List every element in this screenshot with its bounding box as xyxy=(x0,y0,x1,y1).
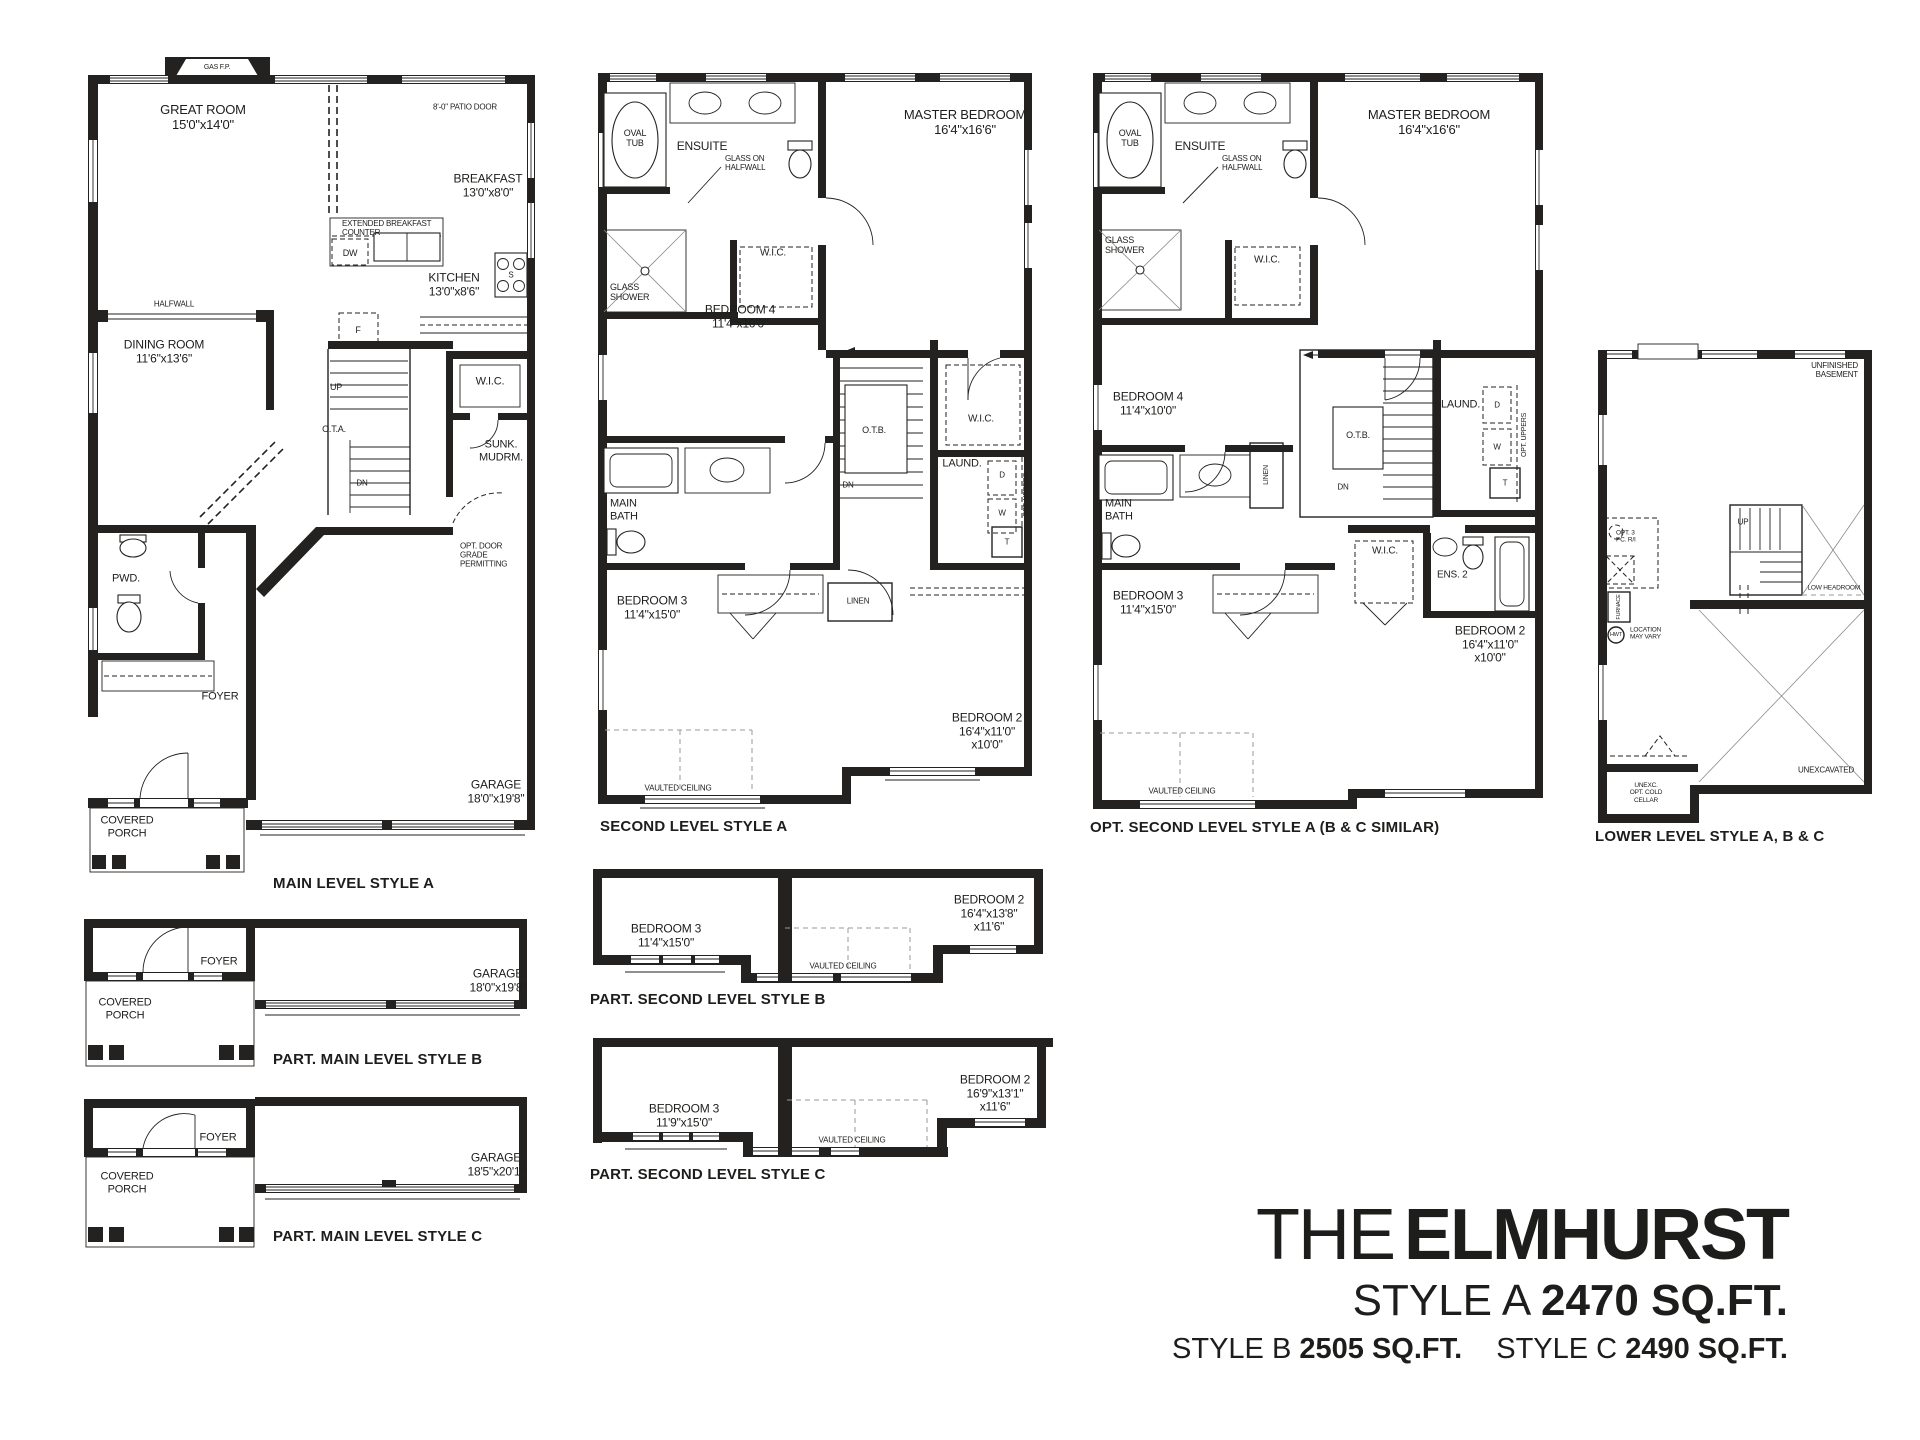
main-a-breakfast-label: BREAKFAST 13'0"x8'0" xyxy=(454,172,523,199)
main-bath-tub-icon xyxy=(604,448,678,493)
second-a-bedroom3-label: BEDROOM 3 11'4"x15'0" xyxy=(617,594,687,621)
lower-up-label: UP xyxy=(1738,517,1749,526)
lower-low-headroom-label: LOW HEADROOM xyxy=(1808,584,1861,591)
main-a-patio-door-label: 8'-0" PATIO DOOR xyxy=(433,102,497,111)
main-a-porch-label: COVERED PORCH xyxy=(101,814,154,839)
main-a-gas-fp-label: GAS F.P. xyxy=(204,64,230,72)
psb-caption: PART. SECOND LEVEL STYLE B xyxy=(590,991,826,1008)
plan-second-level-a: OVAL TUB ENSUITE GLASS ON HALFWALL GLASS… xyxy=(590,55,1040,845)
pmc-foyer-label: FOYER xyxy=(200,1132,237,1145)
opt2-tub-t-label: T xyxy=(1503,478,1508,487)
second-a-oval-tub-label: OVAL TUB xyxy=(624,128,647,149)
model-name-prefix: THE xyxy=(1256,1195,1394,1275)
powder-sink-icon xyxy=(120,535,146,557)
floor-plan-sheet: GAS F.P. GREAT ROOM 15'0"x14'0" 8'-0" PA… xyxy=(0,0,1920,1440)
main-a-opt-door-label: OPT. DOOR GRADE PERMITTING xyxy=(460,541,507,568)
second-a-master-label: MASTER BEDROOM 16'4"x16'6" xyxy=(904,108,1026,138)
main-a-ota-label: O.T.A. xyxy=(322,424,346,434)
opt2-laundry-label: LAUND. xyxy=(1441,399,1480,412)
kitchen-sink-icon xyxy=(374,233,440,261)
lower-hwt-label: HWT xyxy=(1610,632,1622,638)
second-a-main-bath-label: MAIN BATH xyxy=(610,497,638,522)
main-a-dn-label: DN xyxy=(356,478,367,487)
plan-part-second-b: BEDROOM 3 11'4"x15'0" VAULTED CEILING BE… xyxy=(585,860,1065,1025)
main-bath-vanity-icon xyxy=(685,448,770,493)
main-a-dining-label: DINING ROOM 11'6"x13'6" xyxy=(124,338,204,365)
main-a-foyer-label: FOYER xyxy=(202,691,239,704)
second-a-glass-shower-label: GLASS SHOWER xyxy=(610,282,649,303)
lower-caption: LOWER LEVEL STYLE A, B & C xyxy=(1595,828,1824,845)
ens2-toilet-icon xyxy=(1463,537,1483,569)
opt2-oval-tub-label: OVAL TUB xyxy=(1119,128,1142,149)
opt-second-level-a-drawing xyxy=(1085,55,1555,845)
opt2-ens2-label: ENS. 2 xyxy=(1437,569,1467,580)
pmb-porch-label: COVERED PORCH xyxy=(99,996,152,1021)
opt2-bedroom2-label: BEDROOM 2 16'4"x11'0" x10'0" xyxy=(1455,624,1525,665)
style-a-sqft: STYLE A 2470 SQ.FT. xyxy=(1172,1278,1788,1324)
main-bath-tub-icon xyxy=(1099,455,1173,500)
lower-cold-cellar-label: UNEXC. OPT. COLD CELLAR xyxy=(1630,782,1663,804)
opt2-vaulted-label: VAULTED CEILING xyxy=(1149,786,1216,795)
porch-outline xyxy=(86,981,254,1066)
main-bath-toilet-icon xyxy=(607,529,645,555)
opt2-wic-b2-label: W.I.C. xyxy=(1372,545,1398,556)
psb-vaulted-label: VAULTED CEILING xyxy=(810,961,877,970)
ens2-tub-icon xyxy=(1495,537,1529,611)
main-a-wic-label: W.I.C. xyxy=(476,376,505,389)
main-a-stove-label: S xyxy=(508,270,513,279)
opt2-washer-label: W xyxy=(1493,442,1500,451)
ensuite-vanity-icon xyxy=(670,83,795,123)
psc-bedroom2-label: BEDROOM 2 16'9"x13'1" x11'6" xyxy=(960,1073,1030,1114)
stairs-icon xyxy=(840,347,923,498)
lower-location-label: LOCATION MAY VARY xyxy=(1630,627,1661,642)
lower-opt-3pc-label: OPT. 3 PC. R/I xyxy=(1616,530,1636,545)
plan-lower-level: UNFINISHED BASEMENT UP LOW HEADROOM OPT.… xyxy=(1590,330,1880,860)
main-a-garage-label: GARAGE 18'0"x19'8" xyxy=(468,778,525,805)
second-a-bedroom4-label: BEDROOM 4 11'4"x10'0" xyxy=(705,303,775,330)
pmc-garage-label: GARAGE 18'5"x20'1" xyxy=(468,1151,525,1178)
main-bath-toilet-icon xyxy=(1102,533,1140,559)
style-b-label: STYLE B xyxy=(1172,1333,1291,1365)
second-a-linen-label: LINEN xyxy=(847,596,870,605)
second-a-opt-uppers-label: OPT. UPPERS xyxy=(1023,473,1031,517)
lower-unexcavated-label: UNEXCAVATED xyxy=(1798,765,1854,774)
pmb-garage-label: GARAGE 18'0"x19'8" xyxy=(470,967,527,994)
opt2-wic-ensuite-label: W.I.C. xyxy=(1254,254,1280,265)
title-block: THEELMHURST STYLE A 2470 SQ.FT. STYLE B … xyxy=(1172,1198,1788,1364)
pmc-porch-label: COVERED PORCH xyxy=(101,1170,154,1195)
style-b-area: 2505 SQ.FT. xyxy=(1299,1333,1462,1365)
second-a-glass-halfwall-label: GLASS ON HALFWALL xyxy=(725,154,765,172)
main-a-pwd-label: PWD. xyxy=(112,573,140,586)
model-name-main: ELMHURST xyxy=(1404,1195,1788,1275)
psc-caption: PART. SECOND LEVEL STYLE C xyxy=(590,1166,826,1183)
main-a-kitchen-label: KITCHEN 13'0"x8'6" xyxy=(428,271,479,298)
main-a-ext-counter-label: EXTENDED BREAKFAST COUNTER xyxy=(342,219,431,237)
second-a-ensuite-label: ENSUITE xyxy=(677,140,728,154)
opt2-dn-label: DN xyxy=(1337,482,1348,491)
main-a-mudroom-label: SUNK. MUDRM. xyxy=(479,438,523,463)
pmc-caption: PART. MAIN LEVEL STYLE C xyxy=(273,1228,482,1245)
psc-vaulted-label: VAULTED CEILING xyxy=(819,1135,886,1144)
main-a-great-room-label: GREAT ROOM 15'0"x14'0" xyxy=(160,103,246,133)
pmb-caption: PART. MAIN LEVEL STYLE B xyxy=(273,1051,482,1068)
opt-bath-rough-in-icon xyxy=(1604,518,1658,588)
lower-level-drawing xyxy=(1590,330,1880,860)
opt2-ensuite-label: ENSUITE xyxy=(1175,140,1226,154)
main-bath-vanity-icon xyxy=(1180,455,1250,497)
ensuite-toilet-icon xyxy=(1283,141,1307,178)
second-a-washer-label: W xyxy=(998,508,1005,517)
opt2-glass-halfwall-label: GLASS ON HALFWALL xyxy=(1222,154,1262,172)
second-a-tub-t-label: T xyxy=(1005,537,1010,546)
style-a-label: STYLE A xyxy=(1353,1276,1529,1325)
second-a-caption: SECOND LEVEL STYLE A xyxy=(600,818,787,835)
opt2-master-label: MASTER BEDROOM 16'4"x16'6" xyxy=(1368,108,1490,138)
psc-bedroom3-label: BEDROOM 3 11'9"x15'0" xyxy=(649,1102,719,1129)
plan-part-main-b: FOYER COVERED PORCH GARAGE 18'0"x19'8" P… xyxy=(70,905,545,1080)
lower-unfinished-label: UNFINISHED BASEMENT xyxy=(1811,361,1858,379)
style-bc-sqft: STYLE B 2505 SQ.FT. STYLE C 2490 SQ.FT. xyxy=(1172,1334,1788,1364)
opt2-caption: OPT. SECOND LEVEL STYLE A (B & C SIMILAR… xyxy=(1090,819,1439,836)
opt2-otb-label: O.T.B. xyxy=(1346,430,1370,440)
second-a-laundry-label: LAUND. xyxy=(942,458,981,471)
plan-main-level-a: GAS F.P. GREAT ROOM 15'0"x14'0" 8'-0" PA… xyxy=(70,55,540,900)
plan-part-main-c: FOYER COVERED PORCH GARAGE 18'5"x20'1" P… xyxy=(70,1085,545,1265)
opt2-opt-uppers-label: OPT. UPPERS xyxy=(1521,413,1529,457)
style-c-label: STYLE C xyxy=(1496,1333,1617,1365)
second-a-bedroom2-label: BEDROOM 2 16'4"x11'0" x10'0" xyxy=(952,711,1022,752)
main-a-up-label: UP xyxy=(330,382,342,392)
opt2-dryer-label: D xyxy=(1494,400,1500,409)
style-c-area: 2490 SQ.FT. xyxy=(1625,1333,1788,1365)
second-a-wic-master-label: W.I.C. xyxy=(968,413,994,424)
ensuite-vanity-icon xyxy=(1165,83,1290,123)
stairs-icon xyxy=(328,341,453,515)
main-a-dw-label: DW xyxy=(343,248,358,258)
opt2-main-bath-label: MAIN BATH xyxy=(1105,497,1133,522)
main-a-fridge-label: F xyxy=(355,325,360,335)
lower-furnace-label: FURNACE xyxy=(1616,594,1622,619)
psb-bedroom2-label: BEDROOM 2 16'4"x13'8" x11'6" xyxy=(954,893,1024,934)
main-a-caption: MAIN LEVEL STYLE A xyxy=(273,875,434,892)
style-a-area: 2470 SQ.FT. xyxy=(1541,1276,1788,1325)
second-a-wic-ensuite-label: W.I.C. xyxy=(760,247,786,258)
opt2-bedroom4-label: BEDROOM 4 11'4"x10'0" xyxy=(1113,390,1183,417)
opt2-glass-shower-label: GLASS SHOWER xyxy=(1105,235,1144,256)
psb-bedroom3-label: BEDROOM 3 11'4"x15'0" xyxy=(631,922,701,949)
second-a-vaulted-label: VAULTED CEILING xyxy=(645,783,712,792)
powder-toilet-icon xyxy=(117,595,141,632)
pmb-foyer-label: FOYER xyxy=(201,956,238,969)
plan-opt-second-level-a: OVAL TUB ENSUITE GLASS ON HALFWALL GLASS… xyxy=(1085,55,1555,845)
second-a-dn-label: DN xyxy=(842,480,853,489)
ens2-sink-icon xyxy=(1433,538,1457,556)
plan-part-second-c: BEDROOM 3 11'9"x15'0" VAULTED CEILING BE… xyxy=(585,1030,1075,1195)
opt2-bedroom3-label: BEDROOM 3 11'4"x15'0" xyxy=(1113,589,1183,616)
ensuite-toilet-icon xyxy=(788,141,812,178)
second-a-otb-label: O.T.B. xyxy=(862,425,886,435)
opt2-linen-label: LINEN xyxy=(1263,465,1271,485)
second-a-dryer-label: D xyxy=(999,470,1005,479)
model-name: THEELMHURST xyxy=(1172,1198,1788,1274)
main-a-halfwall-label: HALFWALL xyxy=(154,299,194,308)
